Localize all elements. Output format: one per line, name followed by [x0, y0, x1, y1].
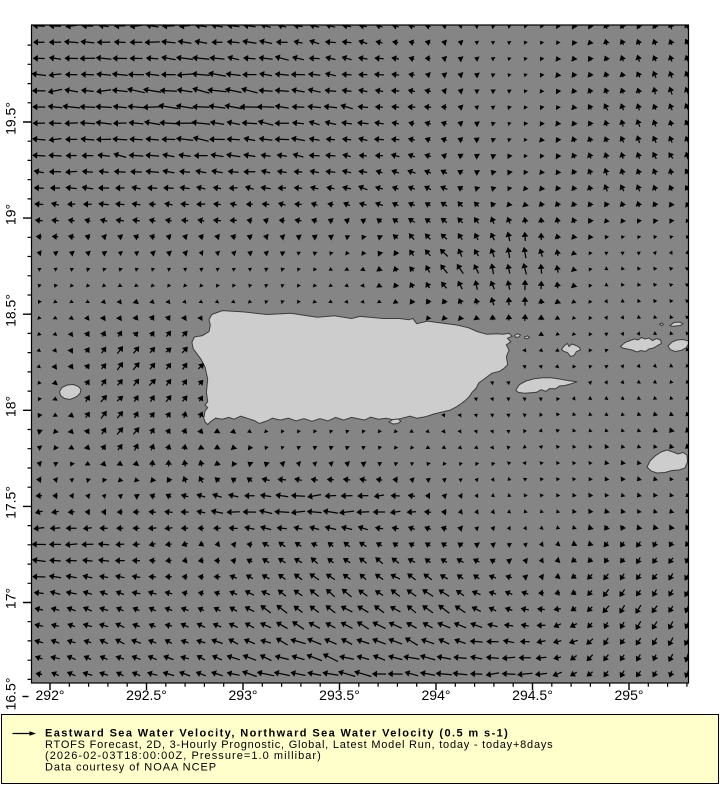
- svg-text:19.5°: 19.5°: [3, 102, 19, 135]
- svg-text:19°: 19°: [3, 204, 19, 225]
- svg-text:17.5°: 17.5°: [3, 486, 19, 519]
- svg-text:17°: 17°: [3, 588, 19, 609]
- svg-text:294.5°: 294.5°: [512, 687, 553, 703]
- svg-text:Data courtesy of NOAA NCEP: Data courtesy of NOAA NCEP: [45, 762, 217, 774]
- svg-text:293°: 293°: [229, 687, 258, 703]
- svg-text:292°: 292°: [36, 687, 65, 703]
- svg-text:18°: 18°: [3, 396, 19, 417]
- svg-text:RTOFS Forecast, 2D, 3-Hourly P: RTOFS Forecast, 2D, 3-Hourly Prognostic,…: [45, 739, 553, 751]
- svg-text:Eastward Sea Water Velocity, N: Eastward Sea Water Velocity, Northward S…: [45, 728, 509, 740]
- svg-text:293.5°: 293.5°: [319, 687, 360, 703]
- svg-text:(2026-02-03T18:00:00Z, Pressur: (2026-02-03T18:00:00Z, Pressure=1.0 mill…: [45, 750, 322, 762]
- svg-text:295°: 295°: [615, 687, 644, 703]
- svg-text:292.5°: 292.5°: [126, 687, 167, 703]
- svg-text:16.5°: 16.5°: [3, 678, 19, 711]
- svg-text:18.5°: 18.5°: [3, 294, 19, 327]
- svg-text:294°: 294°: [422, 687, 451, 703]
